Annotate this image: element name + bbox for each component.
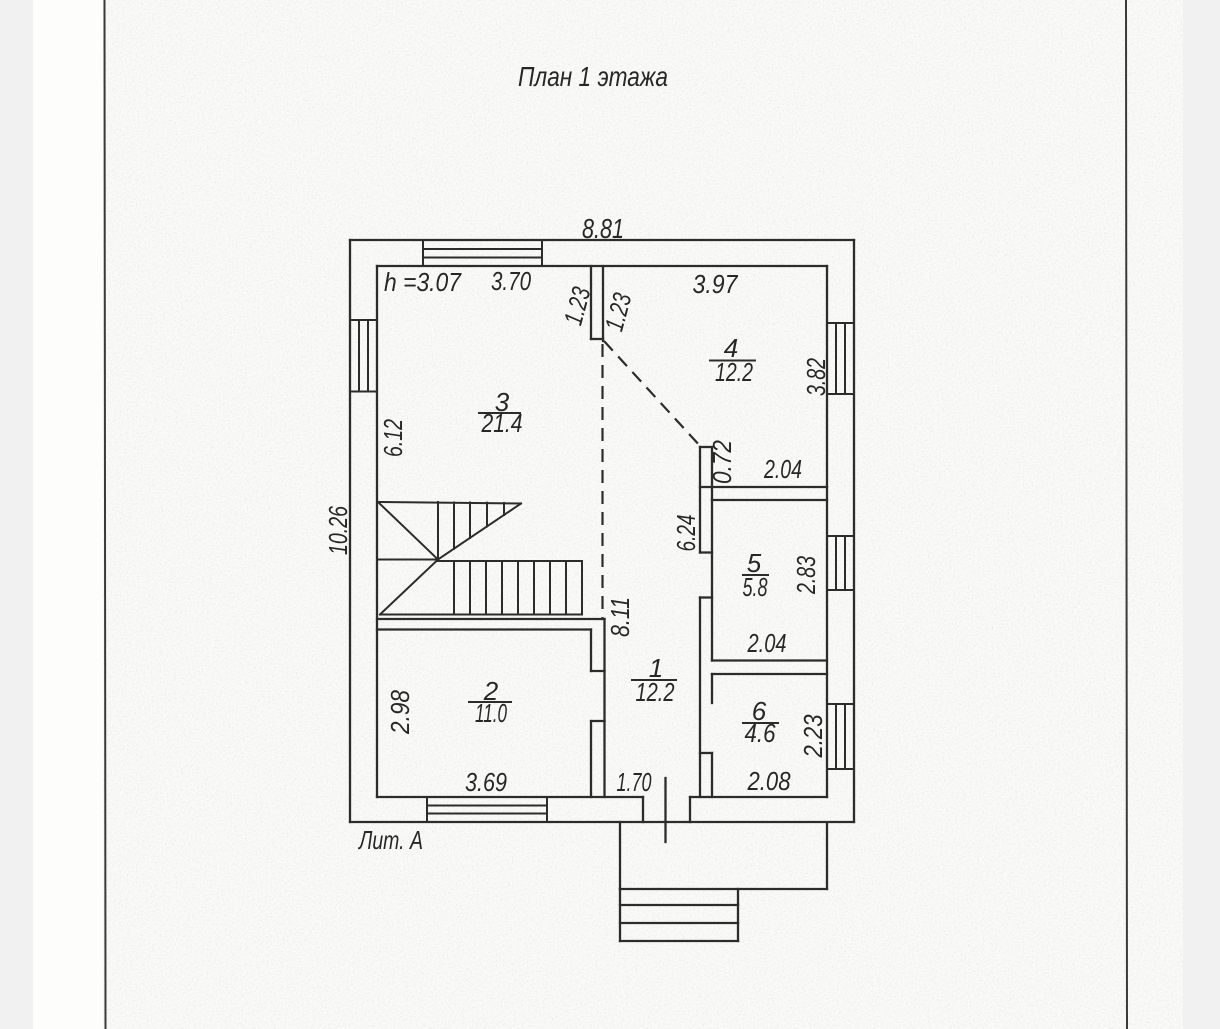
svg-text:2.04: 2.04: [747, 628, 787, 658]
svg-text:6.12: 6.12: [378, 419, 408, 457]
svg-text:2.08: 2.08: [747, 766, 791, 796]
svg-text:4.6: 4.6: [745, 718, 776, 748]
svg-text:1.70: 1.70: [617, 767, 652, 797]
svg-text:0.72: 0.72: [707, 440, 737, 484]
svg-text:2.04: 2.04: [763, 454, 802, 484]
svg-text:11.0: 11.0: [475, 698, 507, 728]
svg-text:2.98: 2.98: [385, 690, 415, 735]
svg-text:3.69: 3.69: [465, 767, 507, 797]
svg-text:h =3.07: h =3.07: [384, 267, 462, 297]
svg-text:8.11: 8.11: [605, 597, 635, 637]
svg-text:2.23: 2.23: [798, 714, 828, 758]
svg-text:12.2: 12.2: [636, 677, 675, 707]
svg-text:2.83: 2.83: [791, 556, 821, 595]
svg-text:21.4: 21.4: [481, 408, 523, 438]
svg-text:5.8: 5.8: [743, 572, 768, 602]
svg-text:Лит. А: Лит. А: [358, 825, 423, 855]
svg-text:3.70: 3.70: [491, 266, 531, 296]
svg-text:3.97: 3.97: [693, 269, 739, 299]
svg-text:10.26: 10.26: [323, 506, 353, 555]
svg-text:6.24: 6.24: [671, 515, 701, 552]
svg-text:12.2: 12.2: [715, 357, 753, 387]
svg-text:План 1 этажа: План 1 этажа: [518, 61, 668, 92]
svg-text:3.82: 3.82: [801, 358, 831, 396]
